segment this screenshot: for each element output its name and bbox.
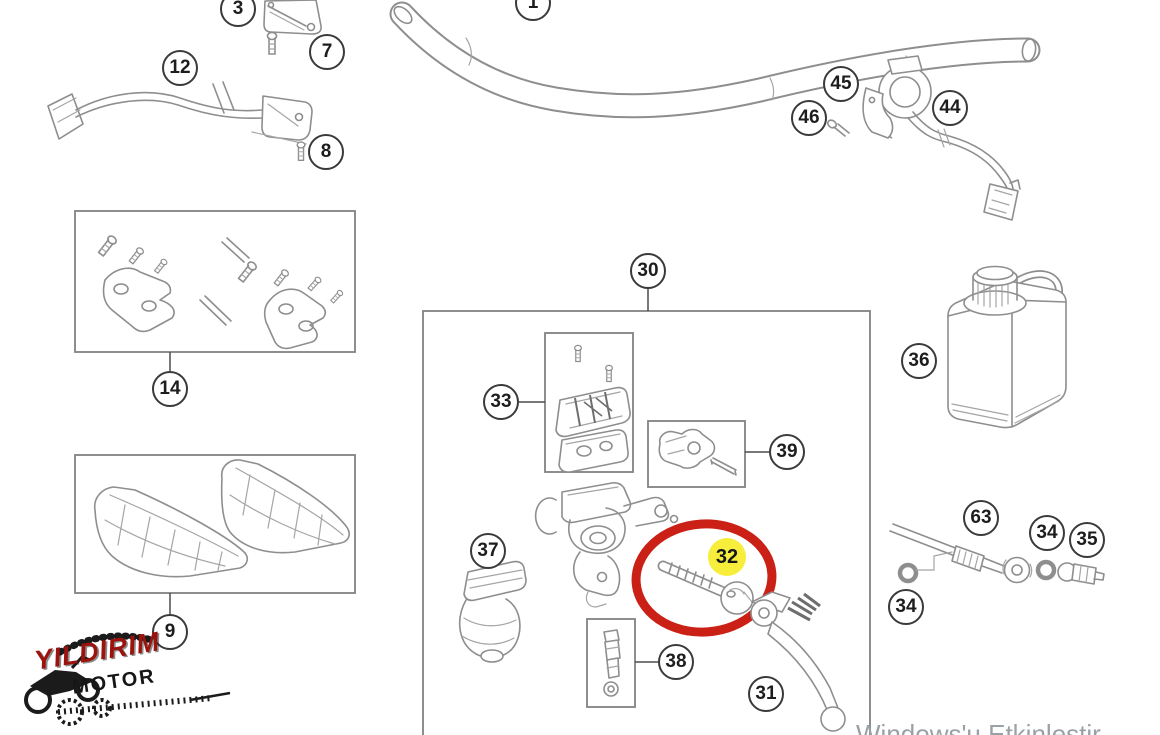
callout-38-label: 38 [665, 651, 686, 673]
callout-3-label: 3 [233, 0, 244, 20]
callout-14-label: 14 [159, 378, 180, 400]
part-switch-halves-33 [556, 345, 630, 472]
callout-34-a: 34 [1029, 515, 1065, 551]
part-switch-plate-3 [264, 0, 321, 34]
callout-36-label: 36 [908, 350, 929, 372]
parts-diagram-page: 1 3 7 12 8 45 46 44 30 14 33 39 36 37 63… [0, 0, 1160, 735]
callout-7: 7 [309, 34, 345, 70]
callout-37: 37 [470, 533, 506, 569]
callout-8: 8 [308, 134, 344, 170]
callout-45: 45 [823, 66, 859, 102]
part-boot-37 [460, 562, 526, 662]
callout-7-label: 7 [322, 41, 333, 63]
callout-34-b: 34 [888, 589, 924, 625]
callout-34-a-label: 34 [1036, 522, 1057, 544]
callout-39-label: 39 [776, 441, 797, 463]
highlight-badge-32-label: 32 [716, 546, 738, 569]
callout-46-label: 46 [798, 107, 819, 129]
callout-14: 14 [152, 371, 188, 407]
callout-31: 31 [748, 676, 784, 712]
callout-44: 44 [932, 90, 968, 126]
part-handguards-9 [95, 460, 349, 577]
highlight-badge-32: 32 [708, 538, 746, 576]
callout-35: 35 [1069, 522, 1105, 558]
part-piston-kit-38 [604, 630, 620, 696]
callout-34-b-label: 34 [895, 596, 916, 618]
callout-9-label: 9 [165, 621, 176, 643]
callout-1-label: 1 [528, 0, 539, 14]
kit-box-38 [587, 619, 658, 707]
callout-8-label: 8 [321, 141, 332, 163]
callout-33: 33 [483, 384, 519, 420]
callout-38: 38 [658, 644, 694, 680]
part-clamp-brackets-14 [97, 234, 343, 348]
callout-12-label: 12 [169, 57, 190, 79]
callout-36: 36 [901, 343, 937, 379]
callout-31-label: 31 [755, 683, 776, 705]
part-handlebar [391, 4, 1037, 106]
callout-35-label: 35 [1076, 529, 1097, 551]
callout-39: 39 [769, 434, 805, 470]
activate-windows-watermark: Windows'u Etkinleştir [856, 719, 1101, 735]
kit-box-9 [75, 455, 355, 614]
callout-12: 12 [162, 50, 198, 86]
part-fluid-bottle-36 [948, 267, 1066, 428]
callout-45-label: 45 [830, 73, 851, 95]
callout-44-label: 44 [939, 97, 960, 119]
callout-30: 30 [630, 253, 666, 289]
callout-46: 46 [791, 100, 827, 136]
part-cable-guide-39 [659, 430, 736, 476]
callout-37-label: 37 [477, 540, 498, 562]
callout-63: 63 [963, 500, 999, 536]
callout-33-label: 33 [490, 391, 511, 413]
callout-30-label: 30 [637, 260, 658, 282]
bolt-8 [297, 142, 305, 160]
part-harness-12 [48, 82, 312, 144]
callout-63-label: 63 [970, 507, 991, 529]
bolt-7 [268, 33, 277, 55]
